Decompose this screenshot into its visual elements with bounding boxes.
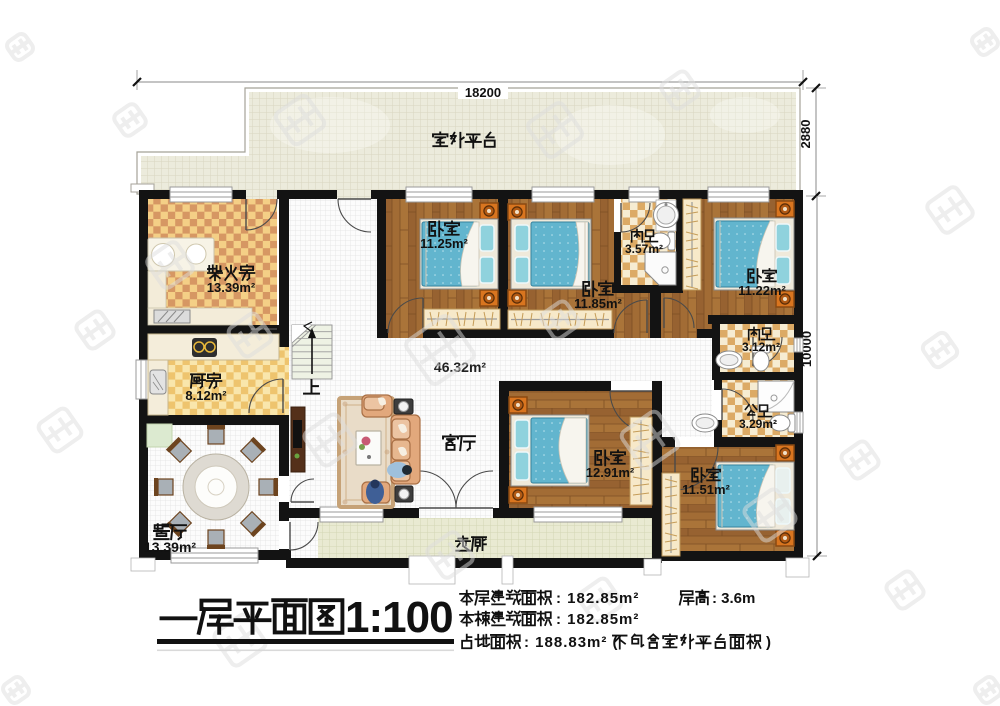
svg-text:3.29m²: 3.29m² — [739, 417, 777, 431]
svg-text:: 188.83m² (: : 188.83m² ( — [524, 634, 619, 651]
svg-text:13.39m²: 13.39m² — [144, 539, 196, 555]
svg-text:8.12m²: 8.12m² — [185, 388, 227, 403]
svg-text:: 3.6m: : 3.6m — [712, 590, 755, 607]
svg-text:11.22m²: 11.22m² — [738, 283, 786, 298]
svg-text:11.51m²: 11.51m² — [682, 482, 730, 497]
svg-text:: 182.85m²: : 182.85m² — [556, 611, 639, 628]
svg-text:1:100: 1:100 — [345, 593, 453, 642]
svg-text:2880: 2880 — [798, 120, 813, 149]
svg-text:13.39m²: 13.39m² — [207, 280, 256, 295]
svg-text:3.57m²: 3.57m² — [625, 242, 663, 256]
svg-text:11.25m²: 11.25m² — [420, 236, 468, 251]
svg-text:): ) — [766, 634, 771, 651]
svg-text:11.85m²: 11.85m² — [574, 296, 622, 311]
svg-text:3.12m²: 3.12m² — [742, 340, 780, 354]
svg-text:: 182.85m²: : 182.85m² — [556, 590, 639, 607]
svg-text:18200: 18200 — [465, 85, 501, 100]
svg-text:12.91m²: 12.91m² — [586, 465, 635, 480]
